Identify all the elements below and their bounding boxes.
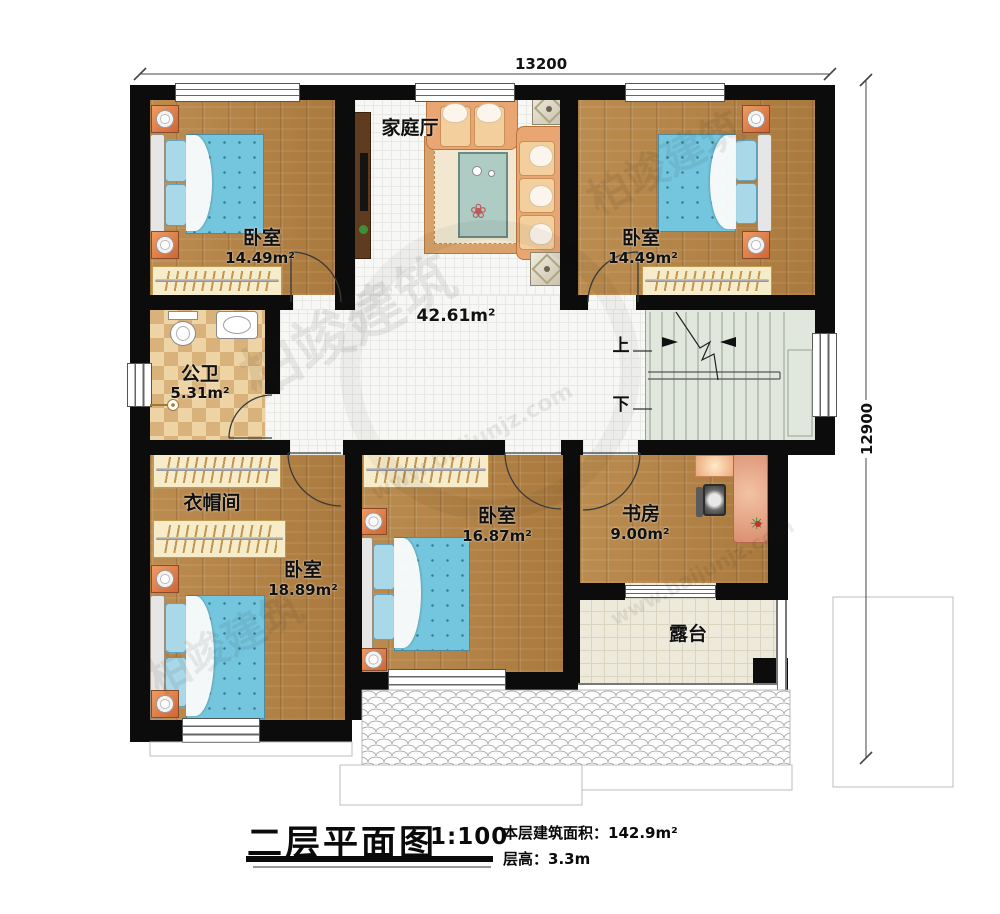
bedroom-top-left-label: 卧室: [243, 229, 281, 249]
stairs-up-label: 上: [613, 338, 630, 356]
bathroom-area: 5.31m²: [170, 386, 229, 402]
floor-plan: ❀: [0, 0, 1000, 914]
dimension-right: 12900: [858, 400, 876, 458]
bedroom-bottom-left-label: 卧室: [284, 561, 322, 581]
stairs-arrowhead-left: [662, 337, 678, 347]
door-swings: [229, 252, 640, 510]
drain-center: [171, 403, 175, 407]
bathroom-label: 公卫: [181, 365, 219, 385]
family-hall-label: 家庭厅: [381, 119, 438, 139]
dimension-top: 13200: [512, 55, 570, 73]
stairs-break-arrow: [676, 312, 718, 380]
bedroom-top-right-label: 卧室: [622, 229, 660, 249]
stairs-treads: [650, 312, 812, 440]
bedroom-bottom-left-area: 18.89m²: [268, 583, 338, 599]
dimension-lines: [134, 68, 872, 764]
bedroom-bottom-middle-area: 16.87m²: [462, 529, 532, 545]
cloakroom-label: 衣帽间: [183, 494, 240, 514]
bedroom-top-right-area: 14.49m²: [608, 251, 678, 267]
bedroom-bottom-middle-label: 卧室: [478, 507, 516, 527]
study-label: 书房: [622, 505, 660, 525]
study-area: 9.00m²: [610, 527, 669, 543]
bedroom-top-left-area: 14.49m²: [225, 251, 295, 267]
roof-tiles: [362, 690, 790, 765]
hall-area: 42.61m²: [417, 308, 496, 326]
stairs-leaders: [633, 351, 652, 409]
terrace-label: 露台: [669, 625, 707, 645]
plan-overlay: [0, 0, 1000, 914]
stairs-handrail: [648, 372, 780, 379]
stairs-down-label: 下: [613, 397, 630, 415]
